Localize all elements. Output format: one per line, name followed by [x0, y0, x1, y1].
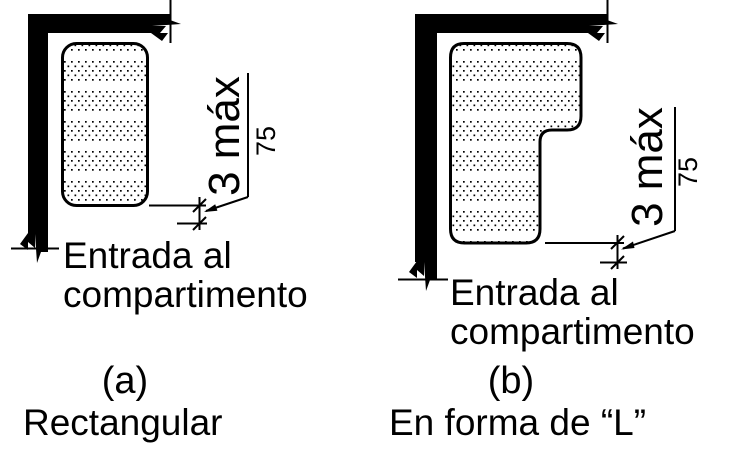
- wall-break-top-icon: [151, 0, 181, 43]
- seat-l-shaped: [451, 44, 582, 244]
- panel-caption-b: En forma de “L”: [389, 402, 646, 444]
- dimension-label-secondary-a: 75: [252, 111, 280, 171]
- wall-left-b: [415, 14, 437, 262]
- wall-break-bottom-icon: [11, 233, 59, 263]
- dimension-label-secondary-b: 75: [674, 142, 702, 202]
- panel-caption-a: Rectangular: [23, 402, 223, 444]
- panel-index-b: (b): [471, 360, 551, 402]
- wall-break-bottom-icon: [398, 261, 448, 291]
- figure-canvas: 3 máx 75 3 máx 75 Entrada al compartimen…: [0, 0, 742, 455]
- entry-label-a: Entrada al compartimento: [63, 236, 308, 314]
- wall-top-b: [415, 14, 589, 33]
- entry-label-b: Entrada al compartimento: [450, 273, 695, 351]
- dimension-label-primary-a: 3 máx: [202, 56, 248, 216]
- wall-left-a: [28, 14, 48, 234]
- dimension-label-primary-b: 3 máx: [625, 87, 671, 247]
- panel-index-a: (a): [85, 360, 165, 402]
- wall-break-top-icon: [588, 0, 618, 43]
- seat-rectangular: [63, 44, 148, 206]
